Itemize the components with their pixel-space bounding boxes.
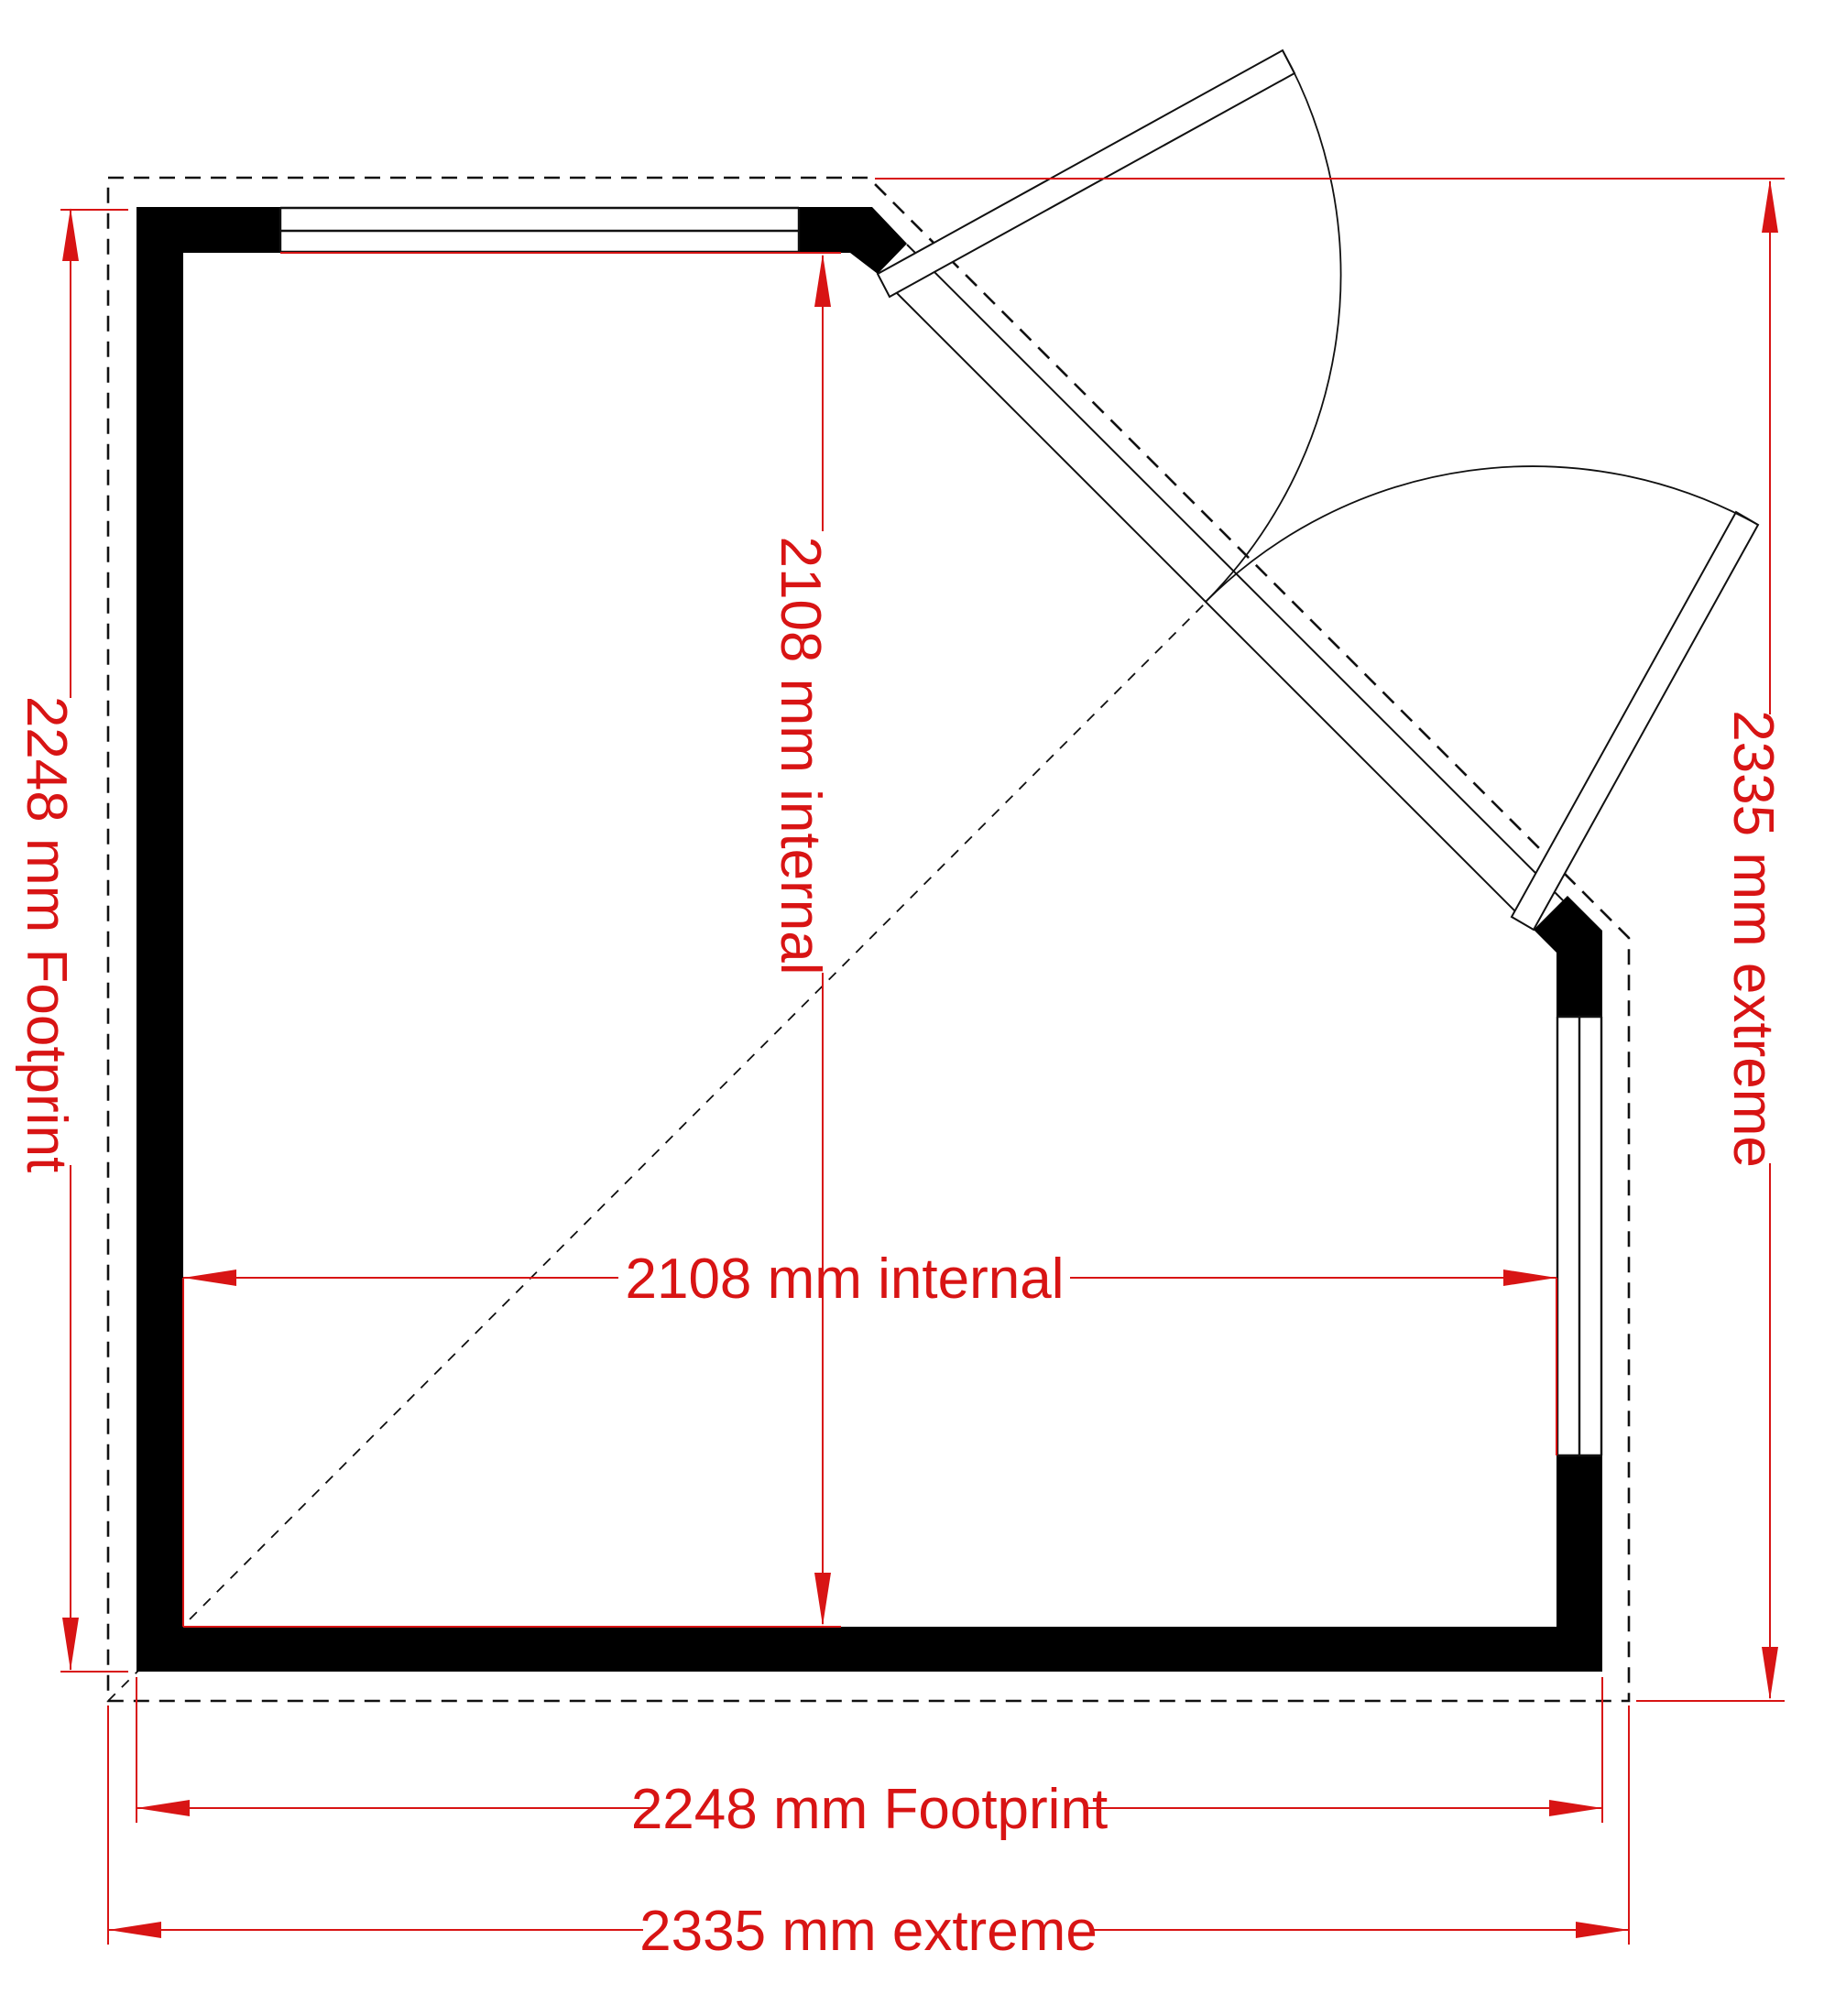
label-right-extreme: 2335 mm extreme (1721, 710, 1785, 1168)
dimension-labels: 2248 mm Footprint 2108 mm internal 2335 … (15, 536, 1785, 1963)
label-left-footprint: 2248 mm Footprint (15, 696, 78, 1172)
window-right (1557, 1017, 1601, 1455)
window-top (280, 208, 799, 252)
diagonal-guide-line (108, 603, 1206, 1701)
extension-lines (60, 179, 1785, 1945)
door-leaf-lower (1512, 512, 1758, 930)
door-swing-arc-lower (1206, 466, 1758, 602)
door-jamb-top (799, 207, 907, 274)
label-horizontal-internal: 2108 mm internal (625, 1248, 1064, 1311)
wall-bottom (137, 1627, 1602, 1672)
door-leaf-upper (878, 50, 1294, 297)
floor-plan-sheet: 2248 mm Footprint 2108 mm internal 2335 … (0, 0, 1835, 2016)
floor-plan-drawing: 2248 mm Footprint 2108 mm internal 2335 … (0, 0, 1835, 2016)
wall-right-lower (1556, 1455, 1602, 1672)
dimension-arrowheads (62, 180, 1778, 1938)
label-vertical-internal: 2108 mm internal (769, 536, 832, 975)
label-bottom-footprint: 2248 mm Footprint (631, 1778, 1108, 1841)
wall-left (137, 207, 183, 1672)
label-bottom-extreme: 2335 mm extreme (639, 1900, 1098, 1963)
door-swing-arc-upper (1206, 50, 1341, 602)
extreme-outline (108, 178, 1629, 1701)
wall-top-segment (137, 207, 280, 253)
door-jamb-right (1534, 896, 1602, 1017)
